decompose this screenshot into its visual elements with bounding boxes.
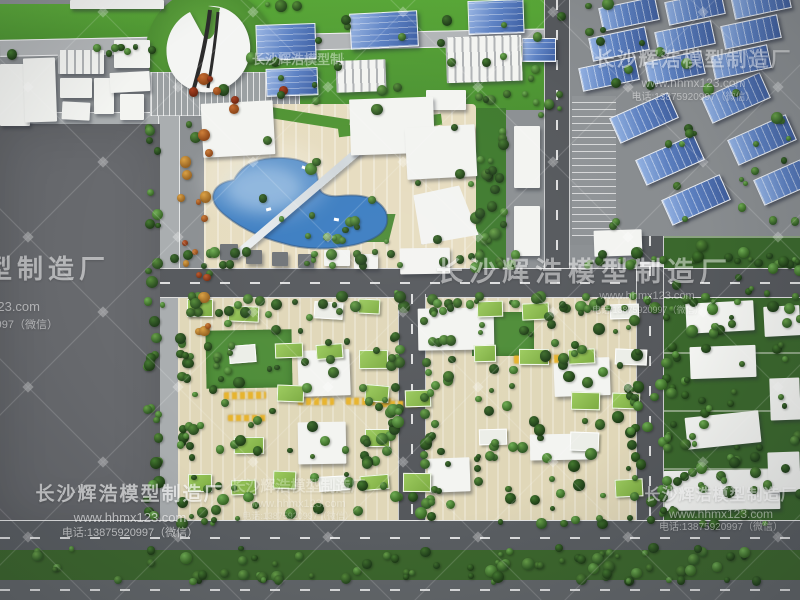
tree xyxy=(315,37,322,44)
tree xyxy=(470,262,481,273)
tree xyxy=(649,302,661,314)
tree xyxy=(549,476,555,482)
tree xyxy=(424,437,431,444)
tree xyxy=(439,257,449,267)
tree xyxy=(540,350,552,362)
tree xyxy=(558,353,569,364)
tree xyxy=(180,156,192,168)
tree xyxy=(576,574,587,585)
tree xyxy=(750,467,761,478)
tree xyxy=(468,573,474,579)
tree xyxy=(243,294,253,304)
tree xyxy=(393,83,402,92)
tree xyxy=(503,90,511,98)
tree xyxy=(189,454,196,461)
tree xyxy=(146,276,158,288)
tree xyxy=(292,299,298,305)
tree xyxy=(279,216,285,222)
tree xyxy=(271,57,281,67)
blue-roof-warehouse xyxy=(664,0,726,26)
tree xyxy=(729,315,734,320)
tree xyxy=(144,297,152,305)
tree xyxy=(547,320,556,329)
tree xyxy=(230,248,240,258)
tree xyxy=(782,356,788,362)
tree xyxy=(627,515,633,521)
tree xyxy=(409,570,415,576)
tree xyxy=(231,485,237,491)
tree xyxy=(621,305,627,311)
tree xyxy=(265,311,273,319)
tree xyxy=(738,247,749,258)
tree xyxy=(437,448,445,456)
tree xyxy=(456,255,465,264)
tree xyxy=(509,383,515,389)
tree xyxy=(506,548,514,556)
tree xyxy=(673,182,681,190)
tree xyxy=(502,401,511,410)
tree xyxy=(420,547,430,557)
tree xyxy=(261,577,266,582)
tree xyxy=(211,517,217,523)
tree xyxy=(626,578,631,583)
tree xyxy=(341,573,352,584)
tree xyxy=(665,140,673,148)
tree xyxy=(706,405,713,412)
tree xyxy=(582,418,587,423)
tree xyxy=(557,106,563,112)
tree xyxy=(571,516,579,524)
tree xyxy=(642,422,653,433)
tree xyxy=(782,403,788,409)
tree xyxy=(189,87,199,97)
tree xyxy=(475,93,483,101)
tree xyxy=(153,417,160,424)
tree xyxy=(269,408,275,414)
tree xyxy=(466,300,475,309)
tree xyxy=(618,257,625,264)
tree xyxy=(147,189,154,196)
green-roof-building xyxy=(277,384,304,402)
tree xyxy=(743,181,748,186)
tree xyxy=(111,44,119,52)
tree xyxy=(427,389,435,397)
tree xyxy=(209,386,217,394)
tree xyxy=(685,129,694,138)
tree xyxy=(271,325,281,335)
tree xyxy=(703,83,715,95)
tree xyxy=(231,96,239,104)
tree xyxy=(699,520,707,528)
tree xyxy=(177,497,188,508)
tree xyxy=(180,552,192,564)
tree xyxy=(431,381,440,390)
tree xyxy=(368,196,376,204)
tree xyxy=(731,389,737,395)
tree xyxy=(681,391,689,399)
tree xyxy=(149,316,160,327)
tree xyxy=(796,315,800,323)
tree xyxy=(336,308,343,315)
tree xyxy=(384,239,389,244)
tree xyxy=(696,240,708,252)
vegetation-layer xyxy=(0,0,800,600)
tree xyxy=(531,293,542,304)
tree xyxy=(216,445,225,454)
blue-roof-warehouse xyxy=(661,174,731,226)
tree xyxy=(478,330,483,335)
tree xyxy=(395,345,405,355)
tree xyxy=(791,217,800,226)
tree xyxy=(642,550,648,556)
tree xyxy=(155,223,161,229)
tree xyxy=(751,167,759,175)
green-roof-building xyxy=(273,471,297,490)
tree xyxy=(482,58,491,67)
tree xyxy=(251,555,258,562)
tree xyxy=(398,301,409,312)
tree xyxy=(647,516,655,524)
tree xyxy=(428,499,435,506)
tree xyxy=(197,507,208,518)
tree xyxy=(224,367,232,375)
tree xyxy=(144,359,155,370)
tree xyxy=(511,300,519,308)
tree xyxy=(698,397,706,405)
tree xyxy=(376,433,388,445)
tree xyxy=(312,158,321,167)
tree xyxy=(146,137,154,145)
tree xyxy=(186,442,194,450)
tree xyxy=(792,293,798,299)
tree xyxy=(148,46,156,54)
tree xyxy=(795,489,800,499)
tree xyxy=(403,574,408,579)
tree xyxy=(329,262,336,269)
tree xyxy=(555,544,564,553)
tree xyxy=(246,52,257,63)
tree xyxy=(447,58,456,67)
tree xyxy=(201,263,207,269)
tree xyxy=(754,259,763,268)
green-roof-building xyxy=(477,301,504,318)
tree xyxy=(243,492,254,503)
tree xyxy=(684,377,690,383)
tree xyxy=(455,169,465,179)
tree xyxy=(721,477,727,483)
tree xyxy=(353,506,363,516)
tree xyxy=(729,457,740,468)
tree xyxy=(505,486,512,493)
tree xyxy=(309,212,315,218)
tree xyxy=(218,376,224,382)
tree xyxy=(582,293,591,302)
tree xyxy=(694,545,702,553)
tree xyxy=(312,97,320,105)
tree xyxy=(372,249,377,254)
tree xyxy=(511,250,521,260)
scale-model-aerial-photo: 长沙辉浩模型制造厂 www.hhmx123.com 电话:13875920997… xyxy=(0,0,800,600)
tree xyxy=(205,323,211,329)
tree xyxy=(709,519,719,529)
tree xyxy=(147,546,155,554)
tree xyxy=(427,512,436,521)
tree xyxy=(184,359,193,368)
tree xyxy=(739,509,750,520)
tree xyxy=(191,475,197,481)
tree xyxy=(795,259,800,265)
tree xyxy=(568,460,580,472)
tree xyxy=(630,492,639,501)
tree xyxy=(528,332,533,337)
tree xyxy=(398,33,406,41)
tree xyxy=(196,272,202,278)
tree xyxy=(677,576,685,584)
tree xyxy=(475,396,482,403)
tree xyxy=(762,521,767,526)
tree xyxy=(577,345,586,354)
tree xyxy=(220,569,229,578)
tree xyxy=(475,251,483,259)
tree xyxy=(559,558,565,564)
tree xyxy=(114,576,122,584)
blue-roof-warehouse xyxy=(701,72,771,124)
tree xyxy=(632,475,638,481)
tree xyxy=(497,261,505,269)
tree xyxy=(625,260,635,270)
tree xyxy=(425,369,432,376)
tree xyxy=(658,493,668,503)
tree xyxy=(627,440,637,450)
tree xyxy=(749,286,754,291)
tree xyxy=(484,406,495,417)
tree xyxy=(666,388,677,399)
tree xyxy=(468,181,474,187)
tree xyxy=(631,568,642,579)
tree xyxy=(143,405,152,414)
tree xyxy=(147,559,155,567)
tree xyxy=(211,505,221,515)
tree xyxy=(205,149,213,157)
tree xyxy=(148,480,157,489)
tree xyxy=(692,251,704,263)
tree xyxy=(573,479,585,491)
tree xyxy=(265,2,270,7)
tree xyxy=(152,209,163,220)
tree xyxy=(533,99,540,106)
tree xyxy=(431,420,439,428)
tree xyxy=(124,48,131,55)
tree xyxy=(365,397,373,405)
tree xyxy=(617,362,623,368)
tree xyxy=(200,191,211,202)
tree xyxy=(734,299,741,306)
tree xyxy=(522,91,528,97)
tree xyxy=(784,303,795,314)
tree xyxy=(446,335,456,345)
tree xyxy=(285,508,296,519)
tree xyxy=(500,208,508,216)
tree xyxy=(342,227,349,234)
tree xyxy=(537,435,543,441)
tree xyxy=(213,87,221,95)
tree xyxy=(377,85,387,95)
tree xyxy=(183,374,191,382)
tree xyxy=(663,314,670,321)
tree xyxy=(726,552,736,562)
tree xyxy=(734,445,740,451)
tree xyxy=(397,262,403,268)
tree xyxy=(302,383,312,393)
tree xyxy=(323,233,330,240)
tree xyxy=(768,263,779,274)
tree xyxy=(238,556,247,565)
tree xyxy=(509,366,517,374)
tree xyxy=(437,39,445,47)
tree xyxy=(238,546,243,551)
tree xyxy=(626,466,632,472)
tree xyxy=(468,253,475,260)
tree xyxy=(670,421,677,428)
tree xyxy=(391,554,399,562)
tree xyxy=(769,216,777,224)
tree xyxy=(106,50,113,57)
tree xyxy=(557,12,566,21)
tree xyxy=(143,496,150,503)
tree xyxy=(154,433,163,442)
tree xyxy=(735,274,742,281)
tree xyxy=(602,0,614,10)
tree xyxy=(500,53,506,59)
tree xyxy=(593,323,605,335)
tree xyxy=(145,268,151,274)
tree xyxy=(203,274,210,281)
tree xyxy=(602,569,612,579)
tree xyxy=(508,442,518,452)
tree xyxy=(498,552,503,557)
tree xyxy=(673,477,682,486)
tree xyxy=(215,482,223,490)
tree xyxy=(224,306,233,315)
tree xyxy=(651,256,657,262)
tree xyxy=(551,339,559,347)
tree xyxy=(639,40,645,46)
tree xyxy=(382,446,392,456)
tree xyxy=(592,553,603,564)
tree xyxy=(498,519,503,524)
green-roof-building xyxy=(403,473,431,492)
tree xyxy=(534,424,545,435)
tree xyxy=(685,565,697,577)
tree xyxy=(467,564,474,571)
tree xyxy=(479,322,485,328)
tree xyxy=(550,506,555,511)
tree xyxy=(390,491,401,502)
blue-roof-warehouse xyxy=(578,56,640,92)
tree xyxy=(689,433,696,440)
tree xyxy=(375,403,383,411)
tree xyxy=(448,356,455,363)
tree xyxy=(489,388,494,393)
tree xyxy=(781,157,787,163)
tree xyxy=(728,320,736,328)
tree xyxy=(764,290,770,296)
tree xyxy=(228,342,236,350)
green-roof-building xyxy=(473,345,496,362)
tree xyxy=(453,298,462,307)
tree xyxy=(624,65,633,74)
tree xyxy=(560,520,567,527)
tree xyxy=(663,444,671,452)
tree xyxy=(439,307,447,315)
tree xyxy=(207,76,213,82)
tree xyxy=(433,235,442,244)
tree xyxy=(255,296,265,306)
tree xyxy=(229,104,239,114)
tree xyxy=(287,448,293,454)
tree xyxy=(267,366,273,372)
tree xyxy=(660,507,667,514)
tree xyxy=(371,104,382,115)
tree xyxy=(626,325,631,330)
tree xyxy=(391,332,400,341)
tree xyxy=(274,365,279,370)
tree xyxy=(292,1,302,11)
tree xyxy=(196,199,201,204)
tree xyxy=(522,558,534,570)
tree xyxy=(192,392,198,398)
tree xyxy=(203,485,212,494)
tree xyxy=(646,81,655,90)
tree xyxy=(189,514,194,519)
tree xyxy=(204,342,213,351)
tree xyxy=(750,452,759,461)
tree xyxy=(686,325,698,337)
tree xyxy=(278,75,284,81)
tree xyxy=(595,419,606,430)
tree xyxy=(318,299,328,309)
tree xyxy=(422,358,431,367)
tree xyxy=(326,249,337,260)
blue-roof-warehouse xyxy=(710,44,772,80)
tree xyxy=(339,237,346,244)
tree xyxy=(69,546,75,552)
tree xyxy=(7,49,18,60)
tree xyxy=(699,420,709,430)
green-roof-building xyxy=(358,298,381,314)
tree xyxy=(732,89,740,97)
tree xyxy=(312,82,318,88)
tree xyxy=(420,317,428,325)
blue-roof-warehouse xyxy=(753,154,800,206)
tree xyxy=(692,441,697,446)
tree xyxy=(160,302,165,307)
tree xyxy=(395,408,402,415)
tree xyxy=(636,459,647,470)
tree xyxy=(633,381,644,392)
tree xyxy=(682,216,688,222)
tree xyxy=(613,329,618,334)
tree xyxy=(650,393,659,402)
tree xyxy=(311,251,317,257)
tree xyxy=(420,459,431,470)
tree xyxy=(325,339,332,346)
tree xyxy=(668,507,679,518)
tree xyxy=(475,208,486,219)
tree xyxy=(431,311,437,317)
tree xyxy=(391,383,400,392)
tree xyxy=(149,511,159,521)
